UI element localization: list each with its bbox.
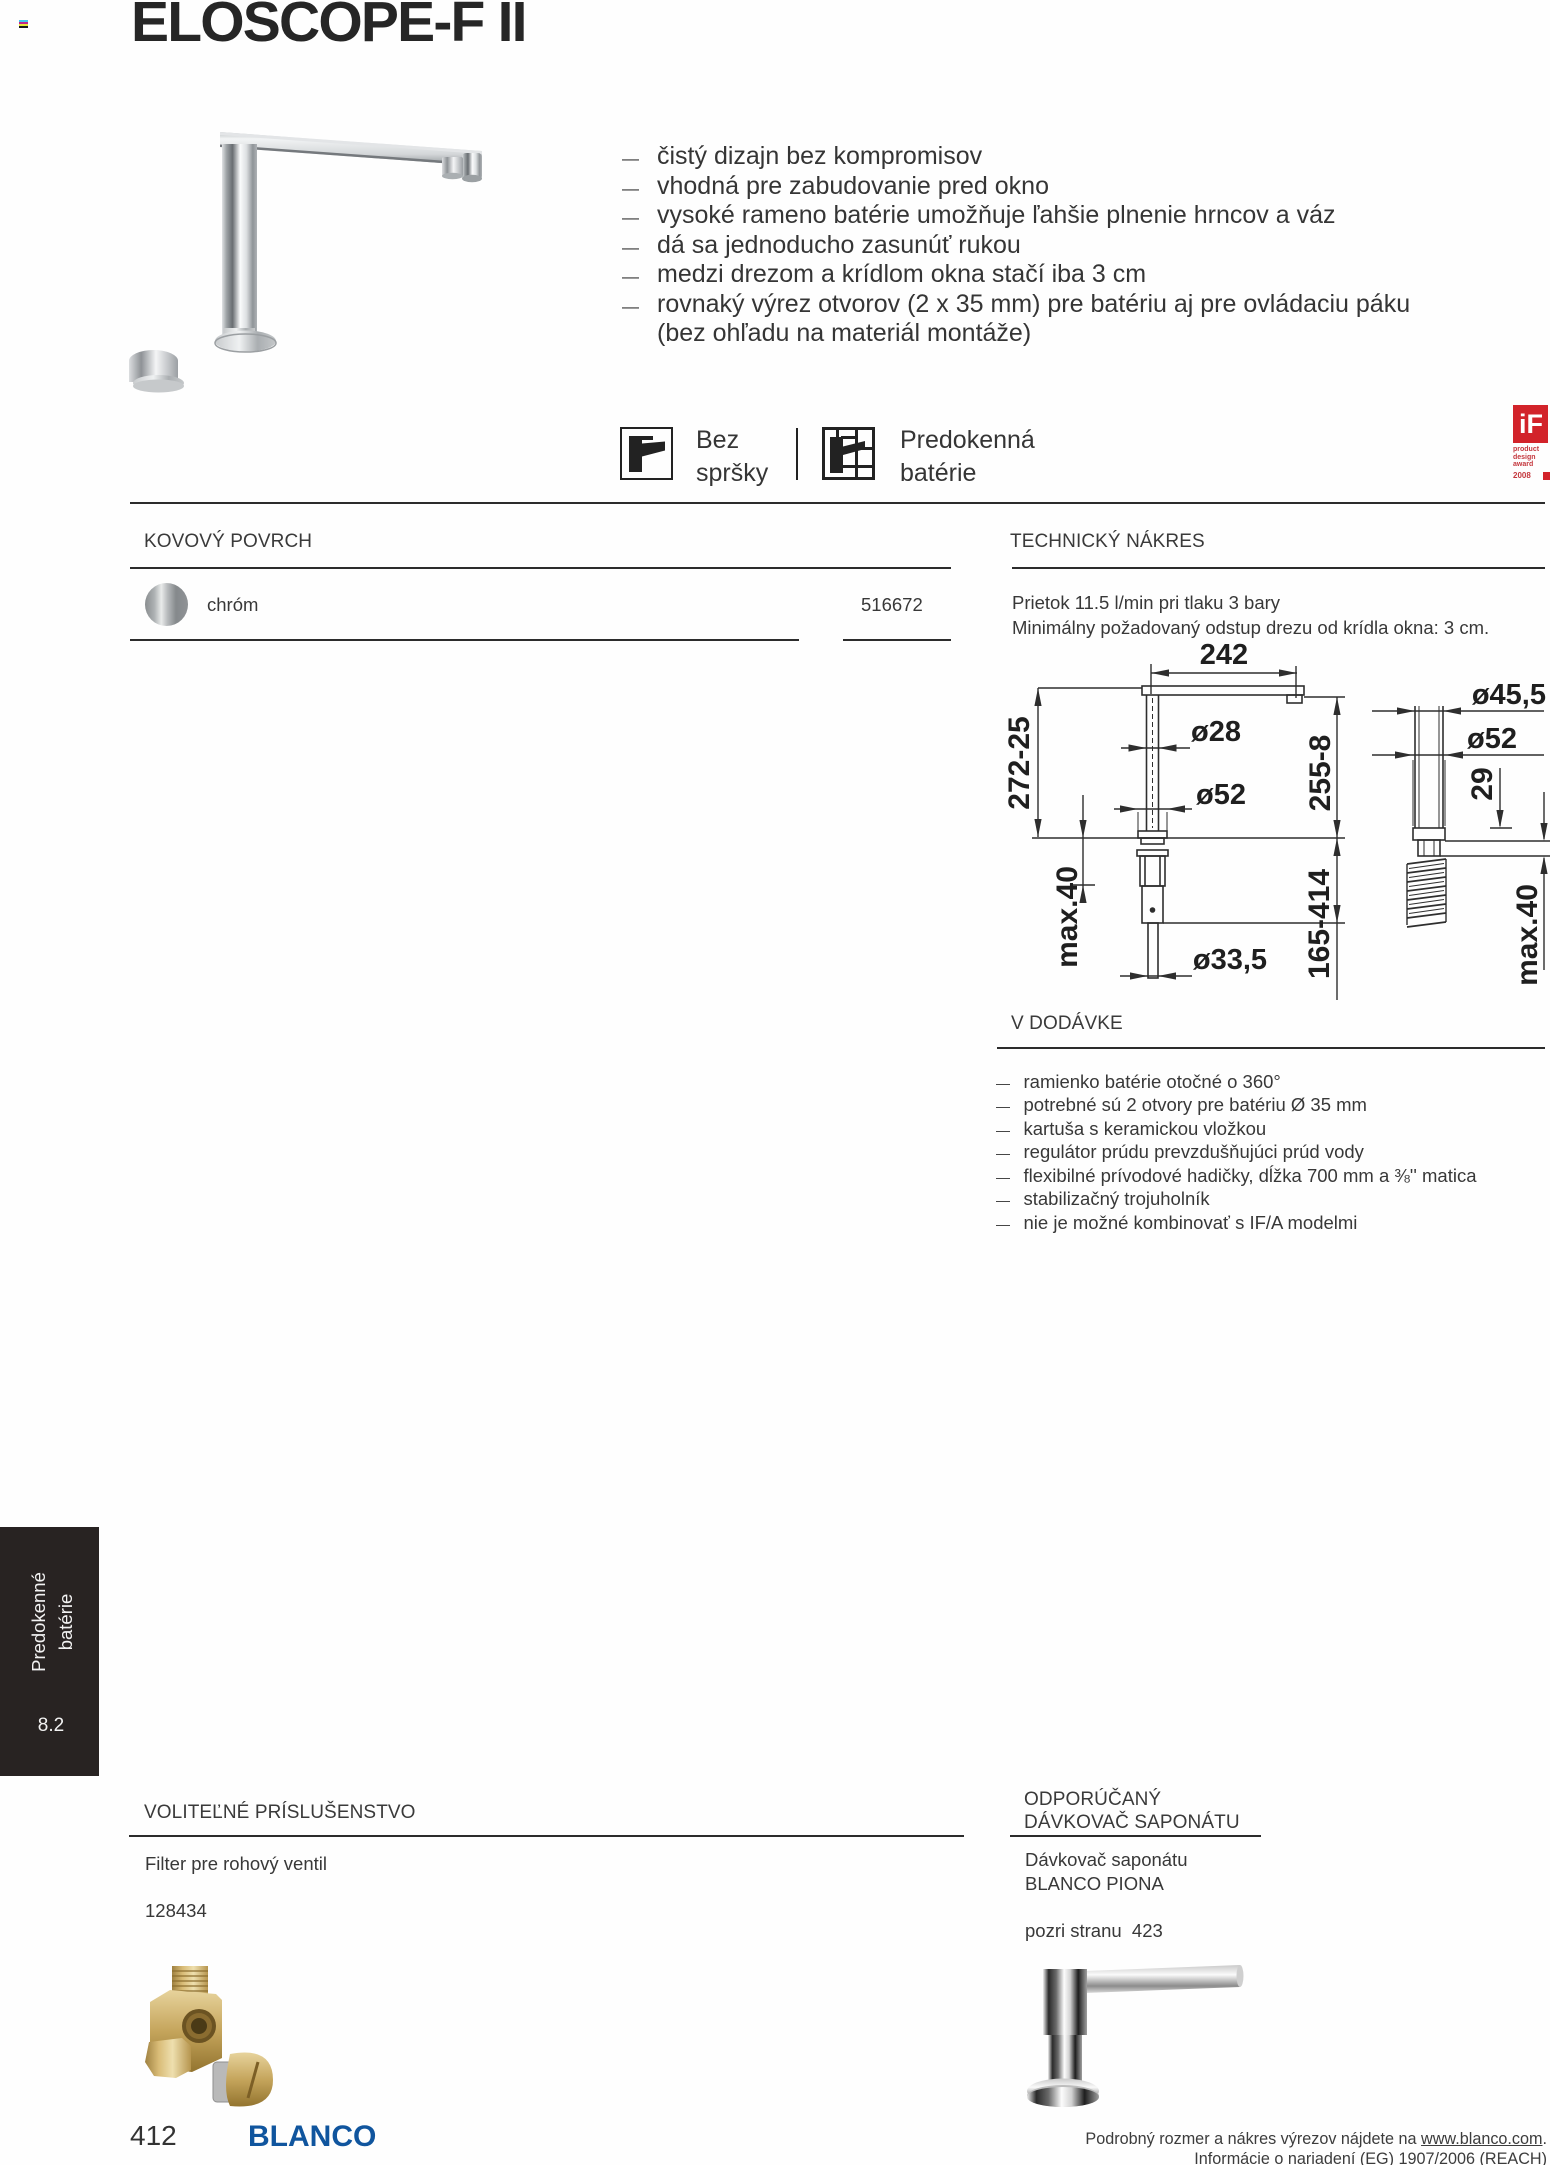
- svg-text:272-25: 272-25: [1003, 716, 1036, 809]
- svg-text:165-414: 165-414: [1303, 869, 1336, 979]
- svg-text:max.40: max.40: [1051, 866, 1084, 968]
- svg-text:ø52: ø52: [1467, 723, 1517, 755]
- svg-text:242: 242: [1200, 640, 1248, 671]
- svg-text:29: 29: [1466, 767, 1499, 800]
- svg-text:max.40: max.40: [1511, 884, 1544, 986]
- svg-text:ø33,5: ø33,5: [1193, 944, 1267, 976]
- svg-text:ø45,5: ø45,5: [1472, 679, 1546, 711]
- svg-text:255-8: 255-8: [1304, 735, 1337, 812]
- svg-text:ø28: ø28: [1191, 716, 1241, 748]
- svg-text:ø52: ø52: [1196, 779, 1246, 811]
